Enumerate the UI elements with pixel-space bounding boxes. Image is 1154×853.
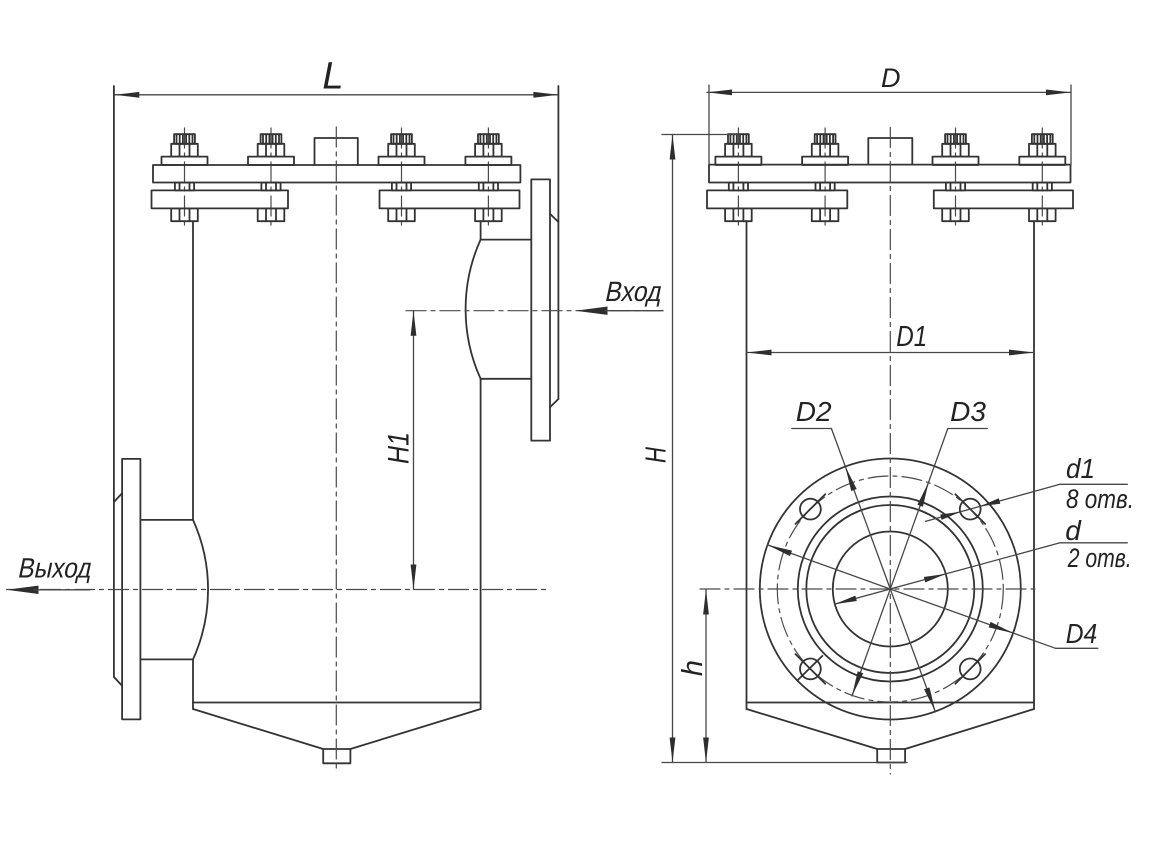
svg-text:Вход: Вход xyxy=(603,275,666,307)
svg-text:D4: D4 xyxy=(1066,618,1098,649)
svg-text:D2: D2 xyxy=(796,396,832,427)
svg-text:d: d xyxy=(1065,515,1082,546)
svg-text:D1: D1 xyxy=(896,321,927,353)
svg-text:D: D xyxy=(881,63,901,93)
svg-text:2 отв.: 2 отв. xyxy=(1067,543,1132,573)
svg-text:H1: H1 xyxy=(383,432,416,464)
svg-text:H: H xyxy=(641,447,673,463)
svg-text:h: h xyxy=(677,660,709,676)
svg-text:Выход: Выход xyxy=(16,552,96,584)
svg-text:8 отв.: 8 отв. xyxy=(1066,484,1134,514)
svg-text:d1: d1 xyxy=(1066,453,1095,484)
svg-text:L: L xyxy=(322,56,343,98)
svg-text:D3: D3 xyxy=(950,396,986,427)
